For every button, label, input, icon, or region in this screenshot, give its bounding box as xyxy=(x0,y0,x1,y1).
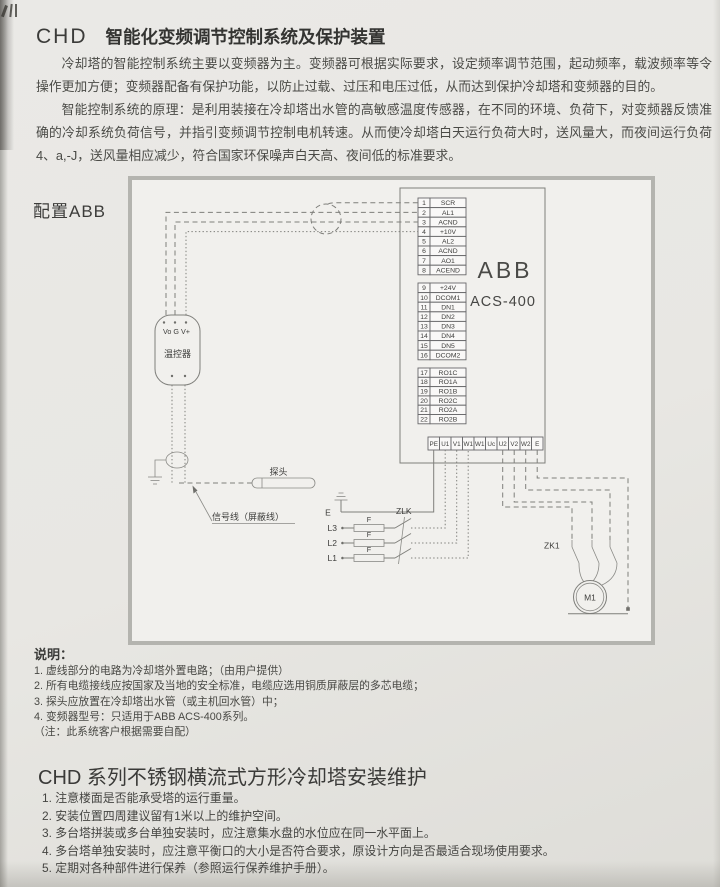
terminal-row: 3ACND xyxy=(418,217,466,227)
page-title-code: CHD xyxy=(36,25,88,48)
mains-row-l1: L1 F xyxy=(328,545,411,563)
terminal-label: RO1A xyxy=(439,379,458,386)
wire-u1 xyxy=(411,450,445,528)
terminal-row: 12DN2 xyxy=(418,312,466,322)
scanned-document-page: { "header": { "code": "CHD", "title": "智… xyxy=(0,0,720,887)
terminal-number: 3 xyxy=(422,219,426,226)
earth-junction-dot xyxy=(626,607,630,611)
terminal-row: 17RO1C xyxy=(418,368,466,377)
terminal-label: ACND xyxy=(438,248,457,255)
contactor-poles xyxy=(572,540,617,585)
terminal-row: 21RO2A xyxy=(418,405,466,414)
terminal-label: DN1 xyxy=(441,304,455,311)
power-terminal-label: W2 xyxy=(521,441,531,448)
terminal-number: 21 xyxy=(420,407,428,414)
page-title-text: 智能化变频调节控制系统及保护装置 xyxy=(106,27,386,47)
terminal-number: 19 xyxy=(420,389,428,396)
thermostat-pin xyxy=(185,321,187,323)
terminal-row: 15DN5 xyxy=(418,341,466,351)
section2-list: 1. 注意楼面是否能承受塔的运行重量。 2. 安装位置四周建议留有1米以上的维护… xyxy=(42,790,555,878)
terminal-row: 13DN3 xyxy=(418,321,466,331)
power-terminal-label: U2 xyxy=(499,441,508,448)
terminal-number: 11 xyxy=(420,304,427,311)
terminal-number: 4 xyxy=(422,229,426,236)
fuse-label: F xyxy=(367,515,372,524)
wiring-diagram: ABB ACS-400 1SCR2AL13ACND4+10V5AL26ACND7… xyxy=(132,180,651,641)
terminal-row: 22RO2B xyxy=(418,415,466,424)
intro-paragraph-2: 智能控制系统的原理：是利用装接在冷却塔出水管的高敏感温度传感器，在不同的环境、负… xyxy=(36,98,712,167)
notes-list: 1. 虚线部分的电路为冷却塔外置电路；（由用户提供） 2. 所有电缆接线应按国家… xyxy=(34,664,424,740)
probe xyxy=(252,478,315,488)
pe-earth-wire xyxy=(341,450,434,512)
fuse-label: F xyxy=(367,545,372,554)
power-terminal-label: V1 xyxy=(453,441,461,448)
terminal-label: RO1B xyxy=(439,389,458,396)
terminal-label: DN5 xyxy=(441,343,455,350)
wire-w1 xyxy=(411,450,468,558)
terminal-row: 7AO1 xyxy=(418,256,466,266)
terminal-row: 4+10V xyxy=(418,227,466,237)
breaker-blade xyxy=(395,534,411,544)
drive-brand-label: ABB xyxy=(477,257,532,283)
terminal-number: 14 xyxy=(420,333,428,340)
power-terminal-label: U1 xyxy=(441,441,450,448)
terminal-number: 15 xyxy=(420,343,428,350)
list-item: 3. 多台塔拼装或多台单独安装时，应注意集水盘的水位应在同一水平面上。 xyxy=(42,825,555,843)
terminal-number: 18 xyxy=(420,379,428,386)
ground-icon xyxy=(335,493,348,500)
scan-corner-mark xyxy=(15,4,17,17)
terminal-number: 6 xyxy=(422,248,426,255)
terminal-label: DN2 xyxy=(441,314,455,321)
l3-label: L3 xyxy=(328,523,338,533)
terminal-label: AL2 xyxy=(442,239,454,246)
section2-title: CHD 系列不锈钢横流式方形冷却塔安装维护 xyxy=(38,761,427,790)
terminal-label: +24V xyxy=(440,285,457,292)
terminal-row: 2AL1 xyxy=(418,208,466,218)
power-terminal-label: PE xyxy=(430,441,438,448)
fuse-label: F xyxy=(367,530,372,539)
terminal-label: DCOM2 xyxy=(436,352,461,359)
diagram-caption: 配置ABB xyxy=(33,197,106,222)
terminal-label: RO2B xyxy=(439,416,458,423)
terminal-row: 6ACND xyxy=(418,246,466,256)
power-terminal-label: Uc xyxy=(487,441,495,448)
terminal-number: 16 xyxy=(420,352,428,359)
signal-line-label: 信号线（屏蔽线） xyxy=(212,511,284,522)
terminal-row: 14DN4 xyxy=(418,331,466,341)
terminal-label: RO2C xyxy=(439,398,458,405)
terminal-row: 10DCOM1 xyxy=(418,293,466,303)
note-item: 2. 所有电缆接线应按国家及当地的安全标准，电缆应选用铜质屏蔽层的多芯电缆； xyxy=(34,679,424,694)
terminal-number: 22 xyxy=(420,416,428,423)
diagram-frame: ABB ACS-400 1SCR2AL13ACND4+10V5AL26ACND7… xyxy=(128,176,655,645)
terminal-row: 5AL2 xyxy=(418,236,466,246)
thermostat-pin xyxy=(174,321,176,323)
terminal-block-relay: 17RO1C18RO1A19RO1B20RO2C21RO2A22RO2B xyxy=(418,368,466,424)
terminal-row: 18RO1A xyxy=(418,377,466,386)
note-item: 1. 虚线部分的电路为冷却塔外置电路；（由用户提供） xyxy=(34,664,424,679)
terminal-block-digital: 9+24V10DCOM111DN112DN213DN314DN415DN516D… xyxy=(418,283,466,360)
list-item: 4. 多台塔单独安装时，应注意平衡口的大小是否符合要求，原设计方向是否最适合现场… xyxy=(42,843,555,861)
note-item: 3. 探头应放置在冷却塔出水管（或主机回水管）中； xyxy=(34,695,424,710)
terminal-row: 1SCR xyxy=(418,198,466,208)
thermostat-pin xyxy=(184,375,186,377)
terminal-block-power: PEU1V1W1W1UcU2V2W2E xyxy=(428,437,543,450)
scan-edge-shadow-right xyxy=(713,0,720,887)
terminal-number: 12 xyxy=(420,314,428,321)
breaker-blade xyxy=(395,549,411,559)
power-terminal-label: E xyxy=(535,441,539,448)
l2-label: L2 xyxy=(328,538,338,548)
ground-icon xyxy=(148,477,162,484)
thermostat-label: 温控器 xyxy=(164,348,191,359)
terminal-row: 20RO2C xyxy=(418,396,466,405)
note-footnote: （注：此系统客户根据需要自配） xyxy=(34,725,424,740)
drive-model-label: ACS-400 xyxy=(470,294,536,310)
terminal-label: DCOM1 xyxy=(436,295,461,302)
earth-label: E xyxy=(325,508,331,518)
wire-g xyxy=(175,222,418,315)
terminal-label: ACND xyxy=(438,219,457,226)
l1-label: L1 xyxy=(328,553,338,563)
power-terminal-label: V2 xyxy=(510,441,518,448)
terminal-number: 17 xyxy=(420,370,428,377)
notes-heading: 说明： xyxy=(34,644,73,663)
terminal-number: 2 xyxy=(422,210,426,217)
terminal-number: 7 xyxy=(422,258,426,265)
cable-ring-icon xyxy=(311,204,341,234)
terminal-number: 20 xyxy=(420,398,428,405)
terminal-row: 9+24V xyxy=(418,283,466,293)
wire-vo xyxy=(166,212,418,315)
terminal-row: 16DCOM2 xyxy=(418,350,466,360)
power-terminal-label: W1 xyxy=(464,441,474,448)
list-item: 1. 注意楼面是否能承受塔的运行重量。 xyxy=(42,790,555,808)
thermostat-pin xyxy=(171,375,173,377)
fuse xyxy=(354,555,384,562)
wire-dot xyxy=(341,557,344,560)
terminal-label: SCR xyxy=(441,200,455,207)
terminal-label: AL1 xyxy=(442,210,454,217)
wire-dot xyxy=(341,527,344,530)
terminal-row: 11DN1 xyxy=(418,302,466,312)
terminal-label: DN4 xyxy=(441,333,455,340)
terminal-label: DN3 xyxy=(441,324,455,331)
list-item: 5. 定期对各种部件进行保养（参照运行保养维护手册）。 xyxy=(42,860,555,878)
breaker-label: ZLK xyxy=(396,506,412,516)
probe-label: 探头 xyxy=(269,466,287,477)
terminal-number: 13 xyxy=(420,324,428,331)
terminal-label: AO1 xyxy=(441,258,455,265)
screen-wire xyxy=(328,203,418,204)
terminal-number: 9 xyxy=(422,285,426,292)
terminal-number: 10 xyxy=(420,295,428,302)
terminal-label: +10V xyxy=(440,229,457,236)
terminal-label: RO2A xyxy=(439,407,458,414)
wire-dot xyxy=(341,542,344,545)
terminal-block-analog: 1SCR2AL13ACND4+10V5AL26ACND7AO18ACEND xyxy=(418,198,466,275)
terminal-row: 8ACEND xyxy=(418,265,466,275)
thermostat-pins-label: Vo G V+ xyxy=(163,327,190,336)
callout-leader xyxy=(196,492,212,521)
contactor-label: ZK1 xyxy=(544,541,560,551)
terminal-number: 5 xyxy=(422,239,426,246)
terminal-row: 19RO1B xyxy=(418,387,466,396)
shield-earth-wire xyxy=(155,460,166,477)
thermostat-pin xyxy=(163,321,165,323)
list-item: 2. 安装位置四周建议留有1米以上的维护空间。 xyxy=(42,808,555,826)
terminal-label: RO1C xyxy=(439,370,458,377)
arrow-icon xyxy=(193,486,198,494)
page-title: CHD智能化变频调节控制系统及保护装置 xyxy=(36,24,386,49)
wire-vplus xyxy=(186,232,418,315)
terminal-label: ACEND xyxy=(436,267,460,274)
intro-paragraph-1: 冷却塔的智能控制系统主要以变频器为主。变频器可根据实际要求，设定频率调节范围，起… xyxy=(36,52,712,98)
terminal-number: 8 xyxy=(422,267,426,274)
note-item: 4. 变频器型号：只适用于ABB ACS-400系列。 xyxy=(34,710,424,725)
terminal-number: 1 xyxy=(422,200,426,207)
power-terminal-label: W1 xyxy=(475,441,485,448)
scan-edge-shadow-left-top xyxy=(0,0,14,150)
motor-label: M1 xyxy=(584,593,596,603)
